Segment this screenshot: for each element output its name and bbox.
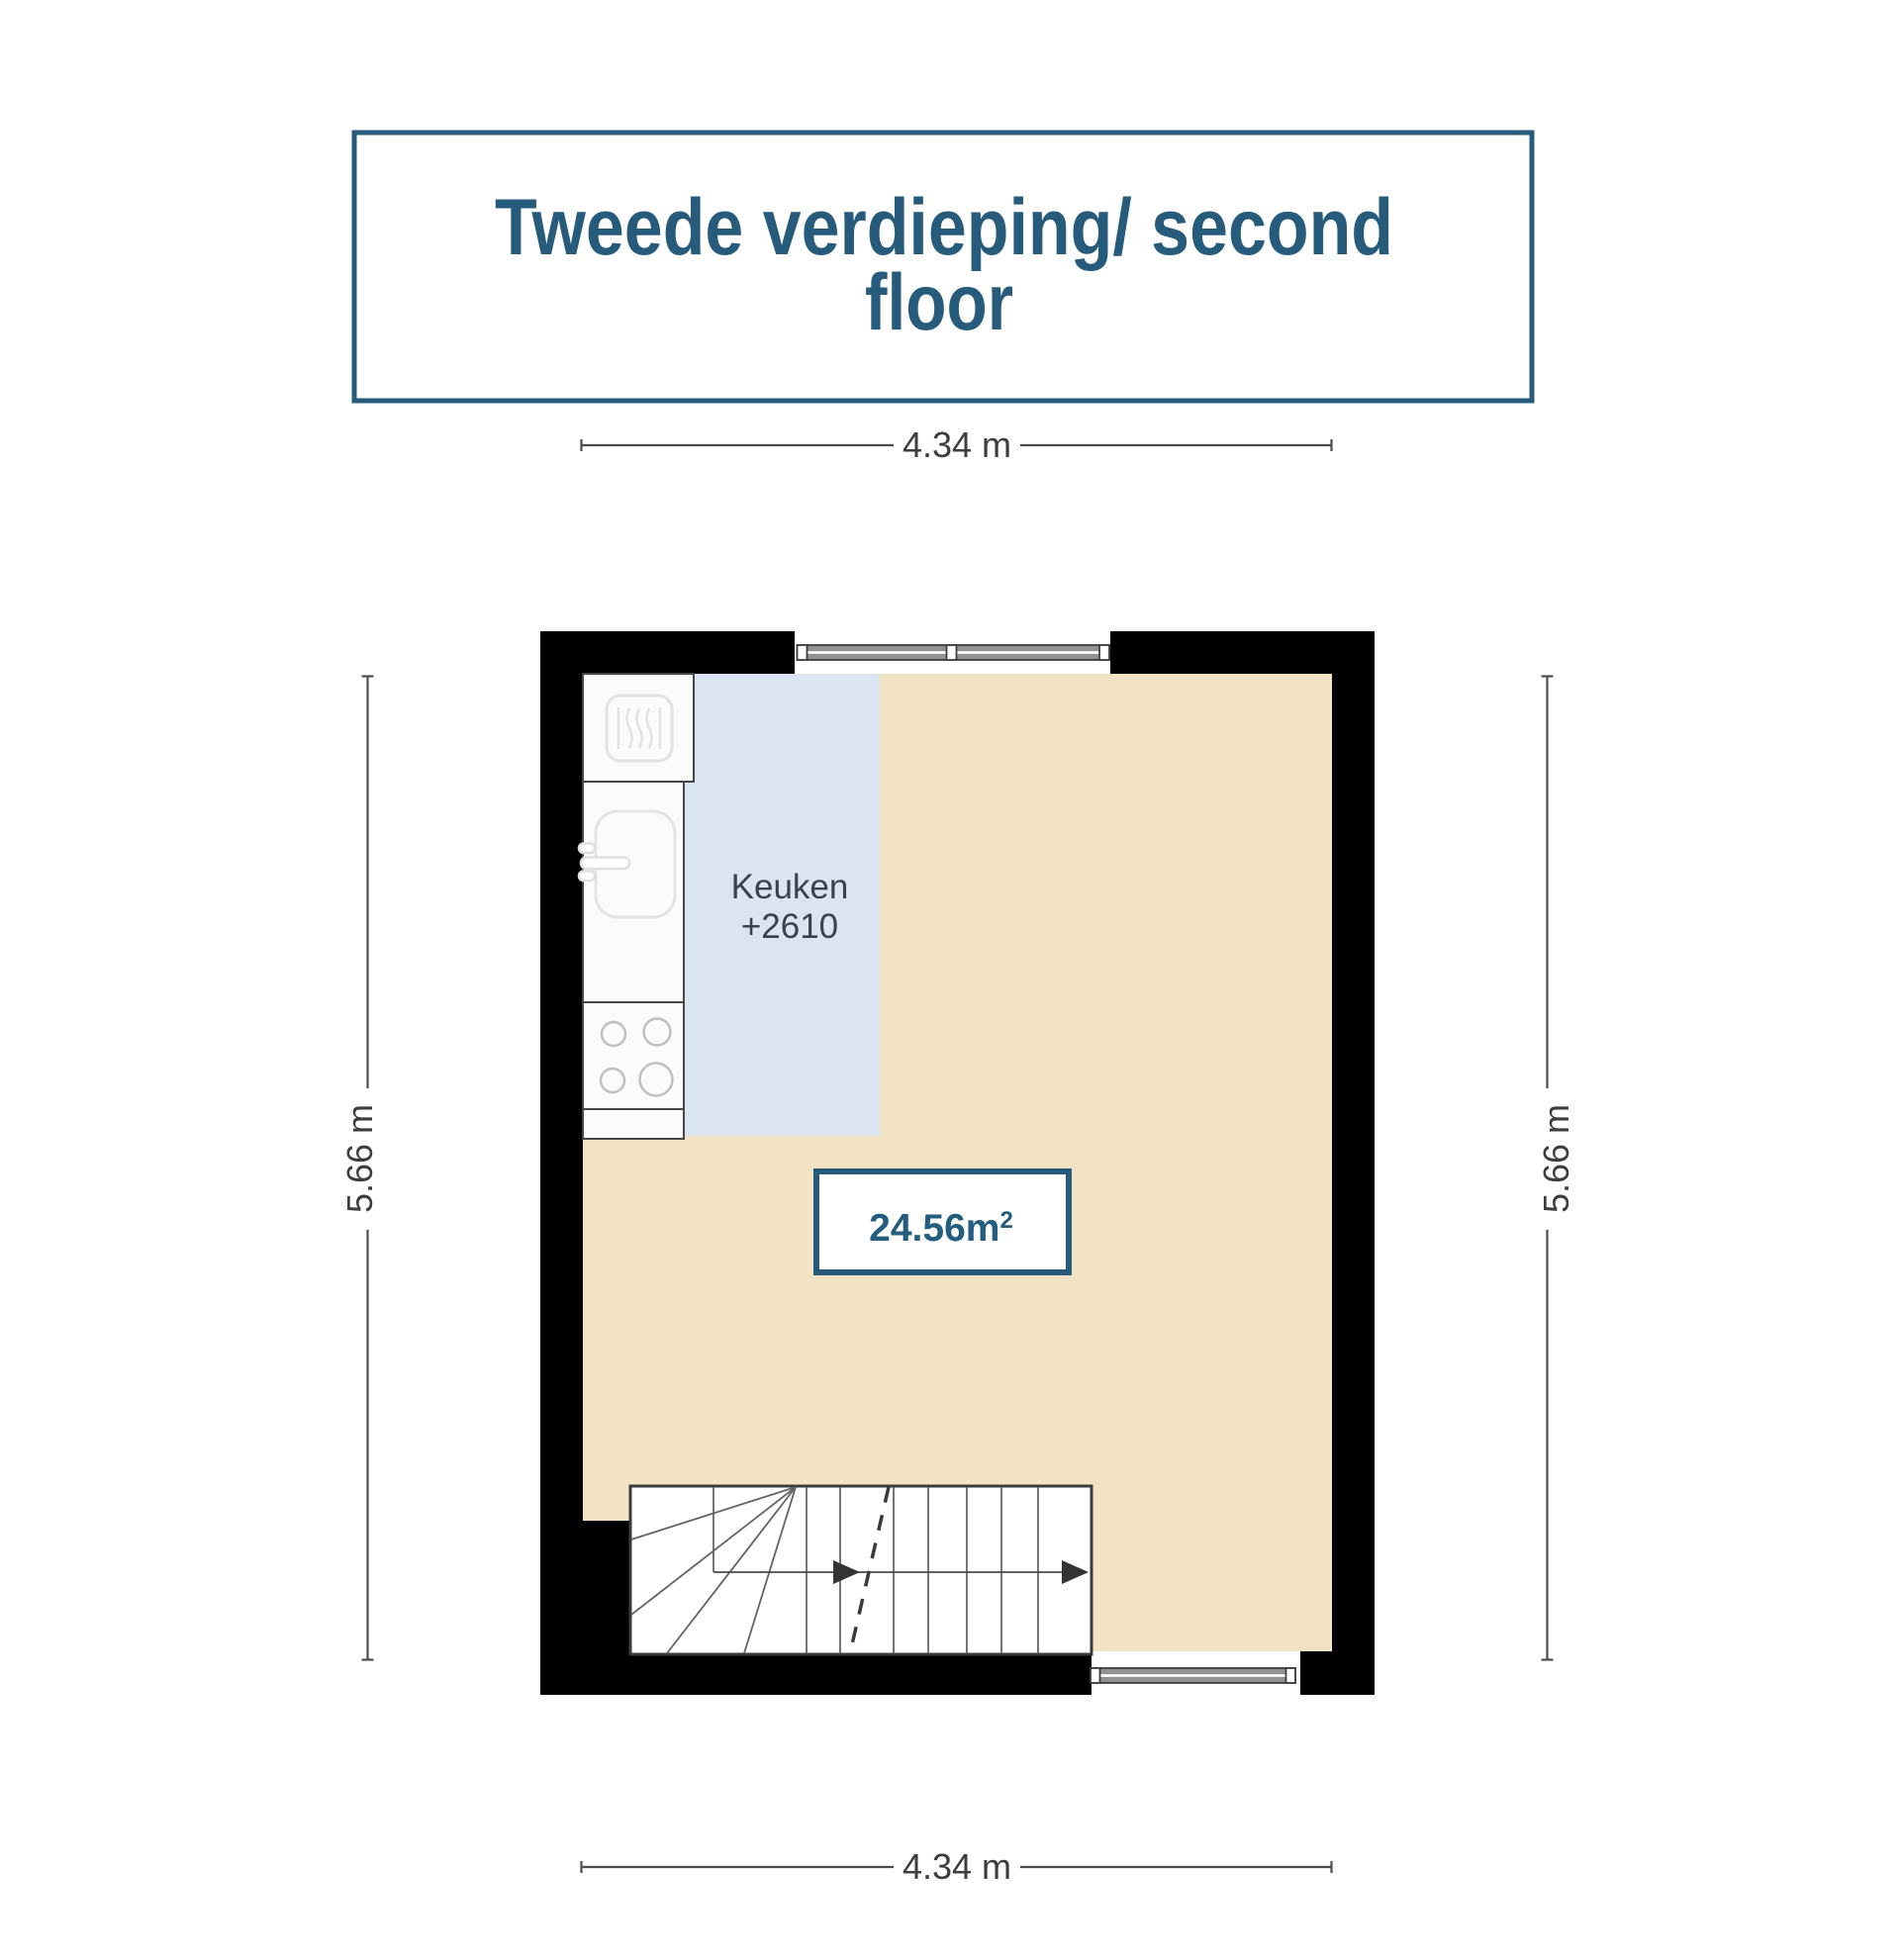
svg-text:floor: floor (865, 258, 1013, 347)
svg-text:4.34 m: 4.34 m (902, 424, 1011, 465)
svg-text:Keuken: Keuken (731, 868, 849, 906)
svg-text:5.66 m: 5.66 m (1536, 1104, 1576, 1213)
svg-text:5.66 m: 5.66 m (339, 1104, 380, 1213)
svg-text:24.56m2: 24.56m2 (869, 1207, 1013, 1250)
svg-text:4.34 m: 4.34 m (902, 1846, 1011, 1887)
svg-text:+2610: +2610 (741, 907, 838, 946)
